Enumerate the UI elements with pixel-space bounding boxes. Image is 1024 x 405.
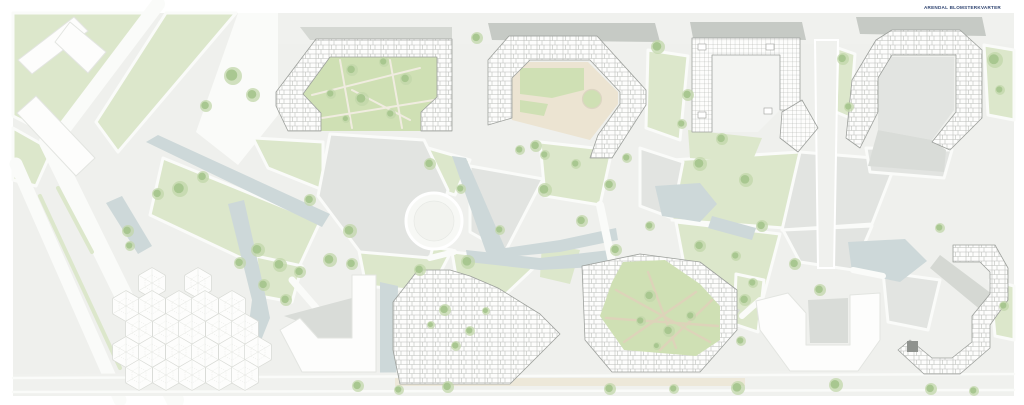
- tree: [694, 240, 706, 252]
- tree: [814, 284, 826, 296]
- masterplan-drawing: ARENDAL BLOMSTERKVARTER: [0, 0, 1024, 405]
- tree: [342, 115, 350, 123]
- tree: [538, 183, 552, 197]
- tree: [424, 158, 436, 170]
- tree: [125, 241, 135, 251]
- tree: [304, 194, 316, 206]
- tree: [394, 385, 404, 395]
- tree: [323, 253, 337, 267]
- tree: [200, 100, 212, 112]
- tree: [258, 279, 270, 291]
- tree: [829, 378, 843, 392]
- tree: [326, 89, 336, 99]
- tree: [515, 145, 525, 155]
- tree: [224, 67, 242, 85]
- tree: [172, 181, 188, 197]
- tree: [530, 140, 542, 152]
- tree: [427, 321, 435, 329]
- tree: [789, 258, 801, 270]
- tree: [280, 294, 292, 306]
- tree: [995, 85, 1005, 95]
- tree: [935, 223, 945, 233]
- block-3-core-3: [698, 112, 706, 118]
- tree: [482, 307, 490, 315]
- tree: [736, 336, 746, 346]
- tree: [294, 266, 306, 278]
- tree: [644, 290, 656, 302]
- tree: [686, 311, 696, 321]
- tree: [756, 220, 768, 232]
- project-title: ARENDAL BLOMSTERKVARTER: [924, 5, 1001, 10]
- tree: [636, 316, 646, 326]
- tree: [716, 133, 728, 145]
- tree: [731, 251, 741, 261]
- block-3-core-4: [764, 108, 772, 114]
- tree: [352, 380, 364, 392]
- tree: [987, 52, 1003, 68]
- tree: [739, 294, 751, 306]
- block-3-core-2: [766, 44, 774, 50]
- tree: [622, 153, 632, 163]
- tree: [122, 225, 134, 237]
- tree: [234, 257, 246, 269]
- tree: [969, 386, 979, 396]
- tree: [731, 381, 745, 395]
- tree: [442, 381, 454, 393]
- block-2-round-lawn: [583, 90, 602, 109]
- plaza-6: [883, 272, 940, 330]
- tree: [379, 57, 389, 67]
- tree: [925, 383, 937, 395]
- promenade-path: [815, 40, 838, 268]
- tree: [451, 341, 461, 351]
- tree: [461, 255, 475, 269]
- tree: [999, 301, 1009, 311]
- tree: [273, 258, 287, 272]
- tree: [645, 221, 655, 231]
- tree: [386, 109, 396, 119]
- site-plan-sheet: ARENDAL BLOMSTERKVARTER: [0, 0, 1024, 405]
- tree: [653, 342, 661, 350]
- tree: [693, 157, 707, 171]
- block-7-courtyard: [808, 298, 848, 343]
- tree: [604, 383, 616, 395]
- tree: [346, 64, 358, 76]
- tree: [343, 224, 357, 238]
- tree: [346, 258, 358, 270]
- tree: [571, 159, 581, 169]
- block-8-stair-core: [907, 341, 918, 352]
- tree: [251, 243, 265, 257]
- tree: [355, 92, 369, 106]
- circle-plaza-inner: [414, 201, 454, 241]
- tree: [456, 184, 466, 194]
- tree: [400, 73, 412, 85]
- tree: [439, 304, 451, 316]
- block-3-core-1: [698, 44, 706, 50]
- tree: [748, 278, 758, 288]
- tree: [604, 179, 616, 191]
- tree: [682, 89, 694, 101]
- shadow-block-3: [690, 22, 806, 40]
- tree: [495, 225, 505, 235]
- tree: [663, 325, 675, 337]
- tree: [197, 171, 209, 183]
- tree: [739, 173, 753, 187]
- tree: [610, 244, 622, 256]
- tree: [651, 40, 665, 54]
- tree: [576, 215, 588, 227]
- tree: [669, 384, 679, 394]
- tree: [414, 264, 426, 276]
- tree: [246, 88, 260, 102]
- tree: [844, 102, 854, 112]
- tree: [540, 150, 550, 160]
- tree: [465, 326, 475, 336]
- tree: [677, 119, 687, 129]
- tree: [837, 53, 849, 65]
- shadow-block-1: [300, 27, 452, 40]
- tree: [152, 188, 164, 200]
- tree: [471, 32, 483, 44]
